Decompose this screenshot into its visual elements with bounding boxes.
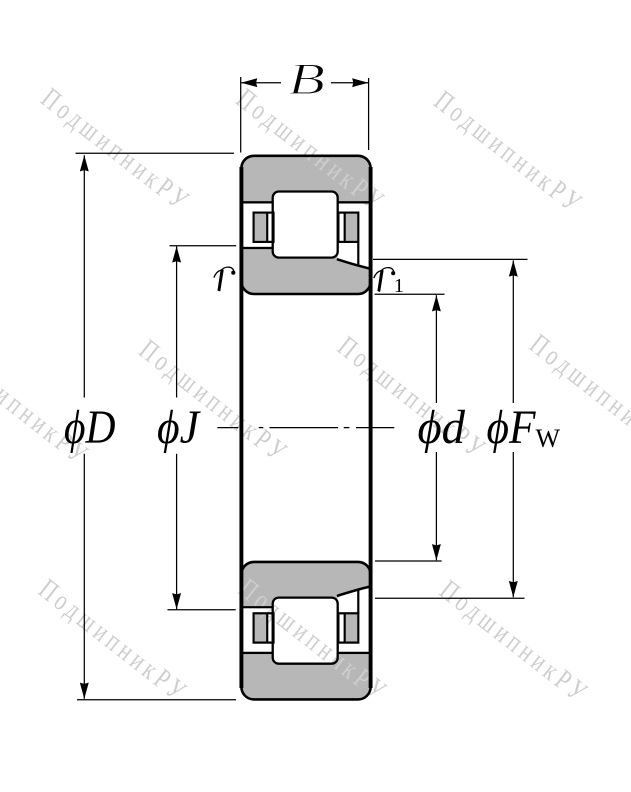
svg-text:ϕJ: ϕJ xyxy=(157,401,201,454)
svg-text:ϕd: ϕd xyxy=(418,401,466,454)
svg-text:B: B xyxy=(288,55,325,104)
svg-text:ϕD: ϕD xyxy=(64,401,116,454)
svg-text:1: 1 xyxy=(394,275,404,297)
